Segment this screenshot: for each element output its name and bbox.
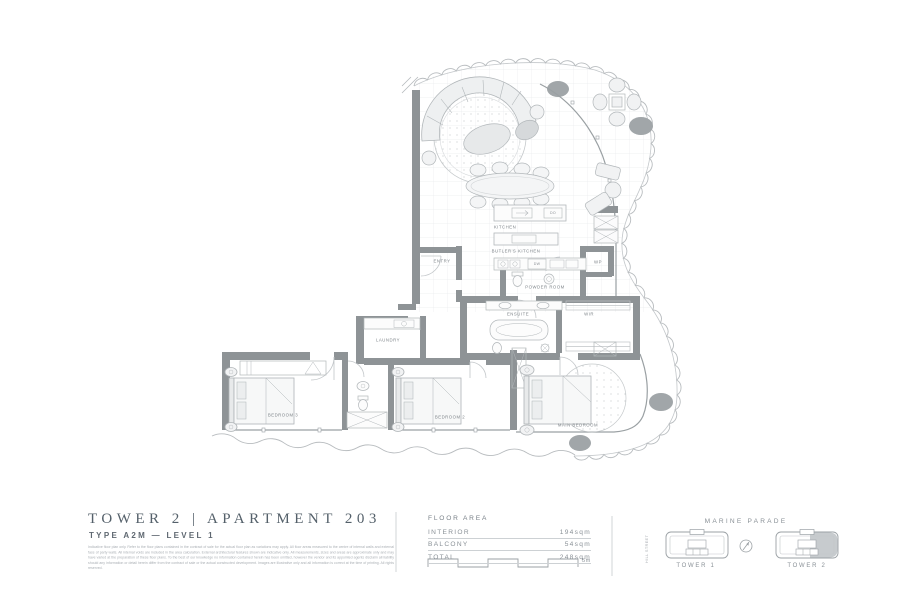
bedroom3-bed bbox=[225, 368, 294, 432]
floor-area-value: 54sqm bbox=[565, 541, 591, 548]
floor-area-label: BALCONY bbox=[428, 541, 469, 548]
tower1-footprint bbox=[666, 530, 728, 559]
appliance-label-dw: DW bbox=[534, 262, 541, 266]
room-label-wp: WP bbox=[594, 260, 602, 265]
room-label-bedroom2: BEDROOM 2 bbox=[435, 415, 465, 420]
street-label-marine-parade: MARINE PARADE bbox=[646, 518, 846, 525]
bathroom-fixtures bbox=[347, 382, 387, 429]
floor-area-table: FLOOR AREA INTERIOR 194sqm BALCONY 54sqm… bbox=[428, 513, 591, 564]
room-label-main-bedroom: MAIN BEDROOM bbox=[558, 423, 598, 428]
room-label-bedroom3: BEDROOM 3 bbox=[268, 413, 298, 418]
compass-icon bbox=[740, 540, 752, 552]
scale-bar-label: 5m bbox=[582, 558, 591, 564]
room-label-laundry: LAUNDRY bbox=[376, 338, 400, 343]
ensuite-fixtures bbox=[486, 301, 562, 354]
appliance-label-do: DO bbox=[550, 211, 556, 215]
floor-area-label: TOTAL bbox=[428, 554, 455, 561]
street-label-side: HILL STREET bbox=[645, 533, 649, 563]
room-label-wir: WIR bbox=[584, 312, 594, 317]
tower1-label: TOWER 1 bbox=[644, 563, 748, 569]
dining-table bbox=[466, 173, 554, 199]
floor-area-row-balcony: BALCONY 54sqm bbox=[428, 539, 591, 552]
bottom-planting-wave bbox=[212, 434, 575, 456]
room-label-kitchen: KITCHEN bbox=[494, 225, 516, 230]
disclaimer-text: Indicative floor plan only. Refer to the… bbox=[88, 545, 394, 571]
floor-area-row-total: TOTAL 248sqm bbox=[428, 551, 591, 564]
side-table bbox=[530, 105, 544, 119]
floor-area-label: INTERIOR bbox=[428, 529, 470, 536]
room-label-ensuite: ENSUITE bbox=[507, 312, 529, 317]
floor-area-header: FLOOR AREA bbox=[428, 513, 591, 526]
tower2-footprint bbox=[776, 530, 838, 559]
bedroom2-bed bbox=[392, 368, 461, 432]
page-subtitle: TYPE A2M — LEVEL 1 bbox=[89, 531, 215, 540]
tower2-label: TOWER 2 bbox=[755, 563, 859, 569]
laundry-fixtures bbox=[364, 318, 420, 329]
room-label-entry: ENTRY bbox=[434, 259, 451, 264]
room-label-butlers-kitchen: BUTLER'S KITCHEN bbox=[492, 249, 541, 254]
floor-area-row-interior: INTERIOR 194sqm bbox=[428, 526, 591, 539]
page-title: TOWER 2 | APARTMENT 203 bbox=[88, 511, 381, 528]
floor-area-value: 194sqm bbox=[560, 529, 591, 536]
room-label-powder-room: POWDER ROOM bbox=[525, 285, 564, 290]
floor-plan-drawing bbox=[0, 0, 900, 600]
side-table bbox=[422, 151, 436, 165]
floorplan-page: ENTRY KITCHEN BUTLER'S KITCHEN POWDER RO… bbox=[0, 0, 900, 600]
